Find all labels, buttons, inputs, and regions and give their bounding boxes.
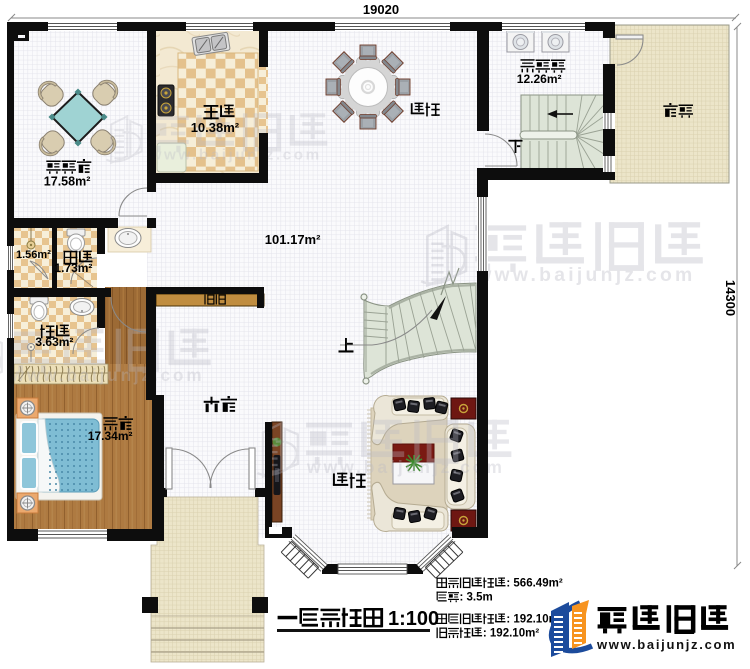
- svg-text:www.baijunjz.com: www.baijunjz.com: [306, 457, 505, 477]
- svg-text:www.baijunjz.com: www.baijunjz.com: [596, 637, 736, 652]
- svg-text:14300: 14300: [723, 280, 738, 316]
- svg-text:101.17m²: 101.17m²: [265, 232, 321, 247]
- svg-text:19020: 19020: [363, 2, 399, 17]
- svg-text:1.56m²: 1.56m²: [16, 249, 51, 261]
- svg-text:17.34m²: 17.34m²: [88, 429, 133, 443]
- svg-text:www.baijunjz.com: www.baijunjz.com: [10, 366, 205, 385]
- svg-text:: 3.5m: : 3.5m: [460, 592, 493, 604]
- svg-text:1.73m²: 1.73m²: [54, 261, 92, 275]
- svg-text:www.baijunjz.com: www.baijunjz.com: [475, 264, 695, 286]
- svg-text:3.63m²: 3.63m²: [35, 335, 73, 349]
- svg-text:1:100: 1:100: [388, 608, 439, 630]
- svg-text:10.38m²: 10.38m²: [191, 120, 240, 135]
- svg-text:: 192.10m²: : 192.10m²: [483, 628, 539, 640]
- svg-text:: 566.49m²: : 566.49m²: [506, 578, 562, 590]
- svg-text:12.26m²: 12.26m²: [517, 72, 562, 86]
- svg-text:17.58m²: 17.58m²: [44, 175, 91, 189]
- svg-text:www.baijunjz.com: www.baijunjz.com: [149, 147, 322, 164]
